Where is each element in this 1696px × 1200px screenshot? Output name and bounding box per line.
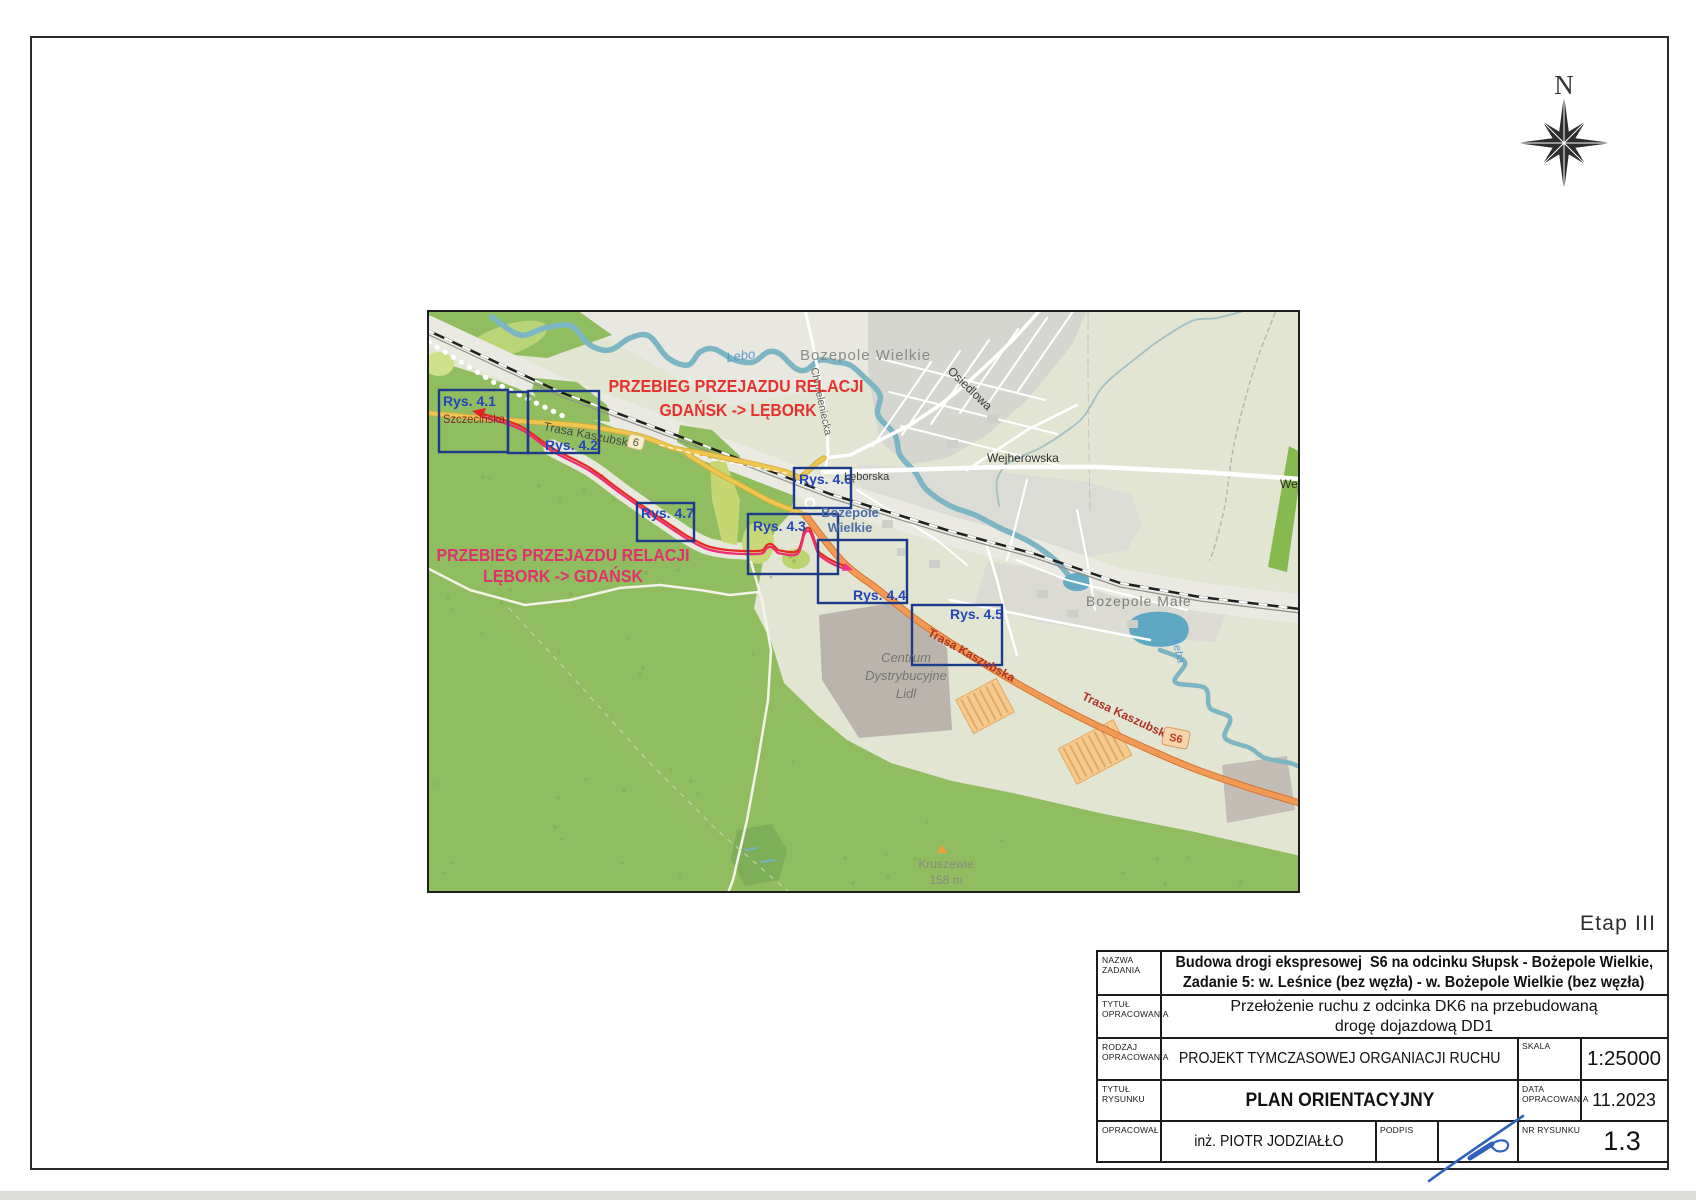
svg-text:N: N <box>1554 70 1574 100</box>
svg-text:Wej: Wej <box>1280 477 1300 491</box>
svg-text:Wejherowska: Wejherowska <box>987 451 1059 465</box>
svg-text:GDAŃSK -> LĘBORK: GDAŃSK -> LĘBORK <box>660 399 817 420</box>
svg-text:Rys. 4.1: Rys. 4.1 <box>443 393 496 409</box>
svg-text:Bozepole: Bozepole <box>821 505 879 520</box>
svg-text:LĘBORK -> GDAŃSK: LĘBORK -> GDAŃSK <box>483 565 643 586</box>
svg-text:Wielkie: Wielkie <box>828 520 873 535</box>
svg-text:Bozepole Małe: Bozepole Małe <box>1086 593 1192 609</box>
svg-text:158 m: 158 m <box>929 873 962 887</box>
svg-text:Lęborska: Lęborska <box>844 471 890 483</box>
svg-text:Rys. 4.3: Rys. 4.3 <box>753 518 806 534</box>
svg-text:Centrum: Centrum <box>881 650 931 665</box>
svg-text:Kruszewie: Kruszewie <box>918 857 974 871</box>
svg-text:PRZEBIEG PRZEJAZDU RELACJI: PRZEBIEG PRZEJAZDU RELACJI <box>437 545 690 565</box>
svg-text:Rys. 4.7: Rys. 4.7 <box>641 505 694 521</box>
svg-text:PRZEBIEG PRZEJAZDU RELACJI: PRZEBIEG PRZEJAZDU RELACJI <box>609 376 864 396</box>
svg-text:Bozepole Wielkie: Bozepole Wielkie <box>800 347 931 364</box>
svg-text:Rys. 4.5: Rys. 4.5 <box>950 606 1003 622</box>
svg-text:Szczecińska: Szczecińska <box>443 412 505 426</box>
svg-text:Rys. 4.4: Rys. 4.4 <box>853 587 906 603</box>
svg-text:Dystrybucyjne: Dystrybucyjne <box>865 668 947 683</box>
svg-text:Lidl: Lidl <box>896 686 917 701</box>
